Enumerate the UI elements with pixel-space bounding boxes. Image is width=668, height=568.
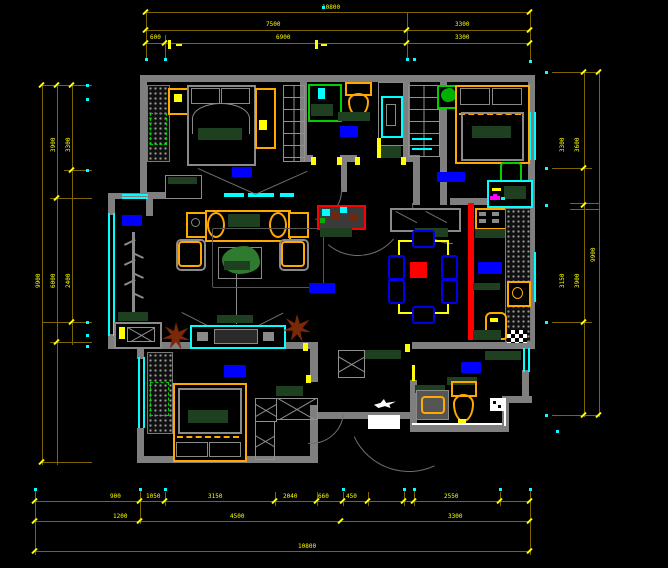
bath-shelf	[381, 146, 401, 158]
dim-text: 2550	[444, 494, 458, 500]
tv-shelf	[217, 315, 253, 323]
floor-drain	[490, 398, 504, 411]
dim-text: 3300	[455, 22, 469, 28]
dim-line	[146, 43, 530, 44]
door-hinge	[401, 157, 406, 165]
dim-text: 2400	[66, 274, 72, 288]
drain-dot	[493, 401, 496, 404]
dim-line	[584, 72, 585, 417]
dim-text: 9900	[591, 248, 597, 262]
door-width-glyph	[168, 40, 171, 49]
dim-node	[413, 58, 416, 61]
window-balcony	[108, 213, 110, 336]
towel-bar	[377, 138, 381, 158]
bed-drawer	[176, 442, 208, 457]
aquarium-rock	[349, 213, 357, 221]
window-balcony	[113, 213, 115, 336]
closet-shelf	[412, 138, 432, 140]
room-label-bedroom1	[232, 167, 252, 177]
dim-node	[86, 334, 89, 337]
window-kitchen	[534, 252, 536, 302]
dim-line	[146, 30, 530, 31]
dim-node	[86, 169, 89, 172]
dim-node	[403, 488, 406, 491]
dim-text: 3150	[560, 274, 566, 288]
burner	[492, 212, 499, 216]
dim-text: 10800	[298, 544, 316, 550]
dim-node	[499, 488, 502, 491]
wall	[522, 370, 529, 400]
room-label-balcony	[122, 215, 142, 226]
dim-text: 7500	[266, 22, 280, 28]
drain-dot	[498, 405, 501, 408]
dim-ext	[552, 72, 600, 73]
dim-ext	[42, 462, 92, 463]
dim-node	[342, 488, 345, 491]
planter	[118, 312, 148, 321]
desk-blotter	[504, 186, 526, 199]
dim-node	[34, 488, 37, 491]
kitchen-sliding-door	[468, 203, 474, 340]
sofa-cushion	[228, 214, 260, 227]
window-bedroom3	[143, 357, 145, 428]
table-centerpiece	[410, 262, 427, 278]
dim-text: 6900	[276, 35, 290, 41]
dim-node	[322, 6, 325, 9]
shoe-cabinet	[338, 350, 365, 378]
kitchen-counter	[505, 208, 531, 342]
dim-node	[86, 84, 89, 87]
pillow	[191, 88, 220, 104]
dining-chair	[388, 279, 405, 304]
dim-text: 3300	[455, 35, 469, 41]
dim-text: 4500	[230, 514, 244, 520]
window-bath2	[523, 348, 525, 372]
tile-sample	[507, 330, 527, 343]
wardrobe-top-shelf	[276, 386, 303, 396]
glass-door-panel	[248, 193, 274, 197]
bench-top	[168, 177, 197, 184]
dining-chair	[412, 306, 435, 324]
dim-node	[145, 58, 148, 61]
wall	[310, 342, 318, 382]
dim-text: 3300	[560, 138, 566, 152]
dim-line	[35, 551, 530, 552]
dim-node	[139, 488, 142, 491]
dim-ext	[146, 12, 147, 60]
room-label-kitchen	[478, 262, 502, 274]
rug-outline	[212, 228, 324, 288]
drawer-knob	[259, 120, 267, 130]
speaker	[197, 332, 208, 341]
dim-node	[545, 321, 548, 324]
dim-node	[529, 488, 532, 491]
bed-drawer	[209, 442, 241, 457]
logo-plate	[368, 415, 400, 429]
window-balcony-top	[122, 194, 148, 196]
tag-marker	[490, 196, 500, 200]
door-hinge	[303, 343, 308, 351]
dim-node	[164, 488, 167, 491]
window-bedroom3	[138, 357, 140, 428]
dim-text: 6000	[51, 274, 57, 288]
dim-node	[529, 60, 532, 63]
dim-ext	[530, 12, 531, 62]
wardrobe-cell	[255, 421, 275, 460]
dim-node	[86, 98, 89, 101]
door-width-glyph	[315, 40, 318, 49]
desk-item	[492, 188, 501, 191]
dim-ext	[42, 85, 92, 86]
dim-node	[545, 414, 548, 417]
plant-icon	[441, 88, 456, 102]
table-accent	[119, 327, 125, 339]
pillow	[460, 88, 490, 105]
dining-chair	[441, 255, 458, 280]
bed-runner	[472, 126, 511, 138]
room-label-bedroom3	[224, 365, 246, 377]
dim-text: 3300	[448, 514, 462, 520]
closet-shelf	[412, 148, 432, 150]
hall-closet	[408, 85, 440, 157]
dim-tick	[595, 412, 601, 418]
burner	[479, 212, 486, 216]
burner	[492, 219, 499, 223]
dim-ext	[552, 168, 592, 169]
dim-text: 600	[150, 35, 161, 41]
shower-enclosure	[308, 84, 342, 122]
stool-accent	[490, 318, 498, 322]
wall-stub	[146, 198, 153, 216]
speaker	[263, 332, 274, 341]
plant-icon	[150, 382, 169, 416]
tv-screen	[214, 329, 258, 344]
pillow	[492, 88, 522, 105]
table-brace	[127, 327, 155, 342]
aquarium-water	[322, 209, 330, 216]
dim-text: 2040	[283, 494, 297, 500]
armchair-inner	[178, 241, 202, 267]
dim-line	[57, 85, 58, 465]
dim-line	[146, 12, 530, 13]
dim-text: 660	[318, 494, 329, 500]
dim-text: 1200	[113, 514, 127, 520]
pillow	[221, 88, 250, 104]
dim-node	[545, 204, 548, 207]
dining-chair	[388, 255, 405, 280]
bath2-counter	[485, 351, 521, 360]
dim-node	[545, 167, 548, 170]
kitchen-base-cabinet	[473, 330, 501, 340]
dresser-tall	[255, 88, 276, 149]
room-label-living	[309, 283, 335, 293]
burner	[479, 219, 486, 223]
door-width-glyph	[176, 44, 182, 46]
kitchen-shelf	[473, 283, 500, 290]
bath-cabinet	[338, 112, 370, 121]
dim-line	[35, 521, 530, 522]
basin-drain	[386, 104, 396, 126]
shower-bench	[311, 104, 333, 116]
lamp-icon	[174, 94, 182, 102]
dim-node	[413, 488, 416, 491]
dim-ext	[42, 322, 92, 323]
plant-icon	[150, 113, 167, 145]
toilet2-accent	[458, 419, 466, 423]
dim-ext	[552, 415, 600, 416]
dim-text: 9900	[36, 274, 42, 288]
dim-text: 900	[110, 494, 121, 500]
aquarium-rock	[331, 212, 340, 220]
aquarium-water	[340, 207, 347, 213]
dim-node	[545, 71, 548, 74]
dim-text: 1050	[146, 494, 160, 500]
console-shelf	[365, 350, 401, 359]
window-balcony-top	[122, 197, 148, 199]
dim-line	[599, 72, 600, 417]
dim-text: 450	[346, 494, 357, 500]
dim-ext	[407, 12, 408, 60]
wall	[140, 75, 147, 198]
door-width-glyph	[321, 44, 327, 46]
dim-text: 3900	[51, 138, 57, 152]
room-label-bedroom2	[437, 172, 465, 182]
feature-shelf	[320, 228, 352, 237]
dim-node	[86, 321, 89, 324]
dim-text: 3300	[66, 138, 72, 152]
dim-ext	[570, 209, 600, 210]
dining-chair	[412, 230, 435, 248]
dim-text: 3150	[208, 494, 222, 500]
glass-door-panel	[224, 193, 244, 197]
window-bath2	[528, 348, 530, 372]
room-label-bathroom2	[461, 362, 481, 373]
sink-basin	[512, 287, 523, 299]
bed-valance	[177, 428, 239, 438]
wash-basin2	[421, 396, 445, 414]
bed-runner	[198, 128, 242, 140]
dim-node	[164, 58, 167, 61]
cad-canvas[interactable]: 10800 7500 3300 600 6900 3300 900 1050 3…	[0, 0, 668, 568]
dim-node	[86, 345, 89, 348]
toilet2-bowl	[453, 394, 474, 422]
kitchen-counter-top	[475, 229, 505, 238]
tag-marker	[501, 197, 505, 200]
dim-ext	[552, 322, 592, 323]
floor-plant-brown	[283, 314, 311, 342]
shower-head-icon	[318, 88, 325, 99]
wardrobe-cell	[255, 398, 277, 422]
plant-tree-trunk	[132, 232, 135, 320]
wall-face	[504, 398, 506, 426]
dim-text: 3600	[575, 138, 581, 152]
bed-runner	[188, 410, 228, 423]
dining-chair	[441, 279, 458, 304]
dim-node	[406, 58, 409, 61]
window-bedroom2	[534, 112, 536, 160]
dim-line	[72, 85, 73, 345]
dim-line	[35, 501, 530, 502]
room-label-bathroom1	[340, 126, 358, 137]
towel-bar2	[412, 365, 415, 381]
wardrobe-cell	[276, 398, 318, 420]
dim-text: 3900	[575, 274, 581, 288]
dim-line	[42, 85, 43, 465]
wall	[108, 193, 115, 215]
wall	[412, 342, 535, 349]
aquarium-plant	[320, 218, 325, 223]
wardrobe	[283, 85, 305, 162]
lamp-icon	[191, 218, 200, 227]
dim-node	[556, 430, 559, 433]
wall-top	[140, 75, 535, 82]
